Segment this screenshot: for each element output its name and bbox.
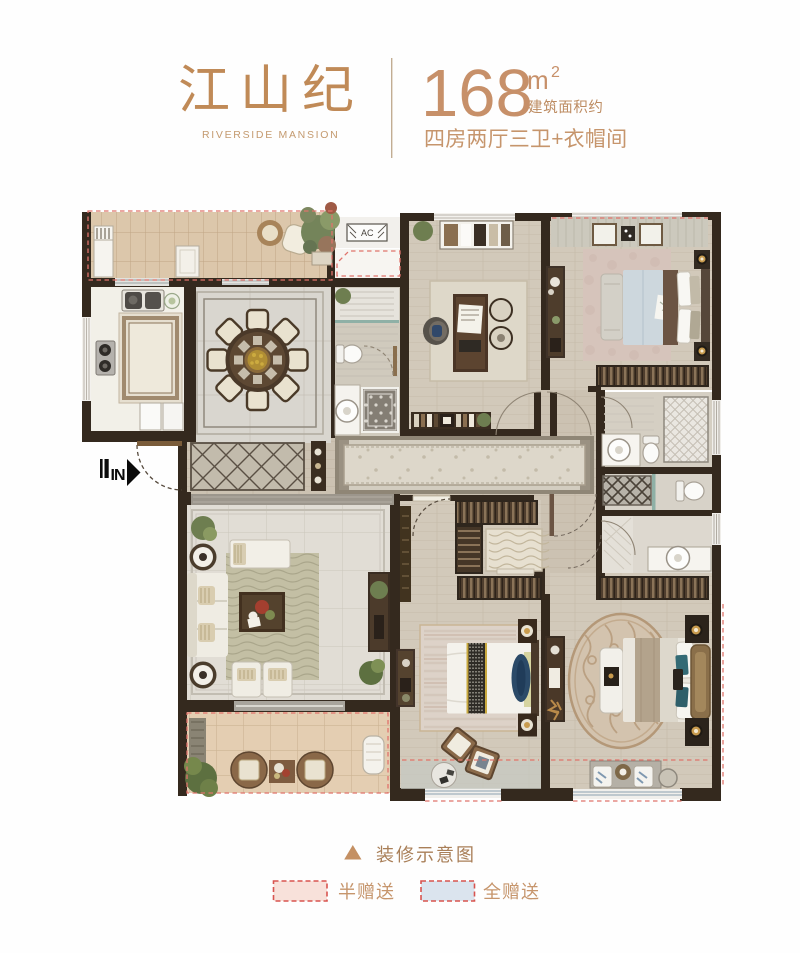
svg-text:2: 2 [551, 64, 560, 81]
svg-text:江山纪: 江山纪 [178, 63, 364, 120]
svg-text:IN: IN [111, 467, 125, 484]
svg-text:168: 168 [421, 56, 533, 131]
svg-text:装修示意图: 装修示意图 [376, 845, 476, 865]
svg-text:RIVERSIDE MANSION: RIVERSIDE MANSION [202, 129, 339, 141]
svg-text:建筑面积约: 建筑面积约 [528, 99, 604, 116]
svg-text:m: m [527, 65, 549, 95]
svg-text:全赠送: 全赠送 [483, 882, 540, 902]
svg-text:半赠送: 半赠送 [338, 882, 395, 902]
svg-text:AC: AC [361, 228, 374, 238]
svg-text:四房两厅三卫+衣帽间: 四房两厅三卫+衣帽间 [424, 128, 627, 151]
